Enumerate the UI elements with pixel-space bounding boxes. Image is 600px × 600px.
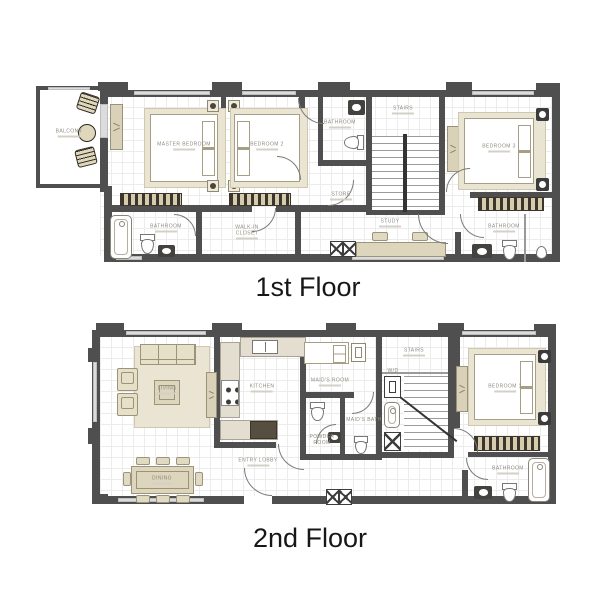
washer-dryer <box>384 376 401 398</box>
room-label-text: DINING <box>152 476 172 482</box>
room-label-text: POWDER ROOM <box>310 434 335 446</box>
armchair <box>117 368 138 391</box>
room-label-dining: DINING <box>151 476 173 485</box>
shaft-box <box>384 432 401 451</box>
closet-hatched <box>474 436 540 451</box>
stove <box>221 380 239 406</box>
dimension-line <box>173 149 195 151</box>
window <box>462 331 536 335</box>
dimension-line <box>236 238 258 240</box>
shaft-box <box>326 489 339 505</box>
room-label-text: BEDROOM 1 <box>488 384 522 390</box>
dimension-line <box>151 483 173 485</box>
dimension-line <box>155 231 177 233</box>
dining-chair <box>136 495 150 503</box>
wardrobe-cabinet <box>456 366 468 412</box>
entry-opening <box>244 496 272 504</box>
dimension-line <box>156 393 178 395</box>
room-label-powder-room: POWDER ROOM <box>304 434 340 446</box>
dimension-line <box>247 465 269 467</box>
room-label-bedroom3: BEDROOM 3 <box>482 144 516 153</box>
dimension-line <box>497 473 519 475</box>
pier <box>438 323 464 331</box>
dimension-line <box>392 113 414 115</box>
wall <box>462 470 468 498</box>
room-label-text: BATHROOM <box>324 120 356 126</box>
room-label-text: MAID'S BATH <box>346 417 382 423</box>
floor1-title: 1st Floor <box>255 272 360 303</box>
dimension-line <box>251 391 273 393</box>
dimension-line <box>330 199 352 201</box>
dimension-line <box>494 391 516 393</box>
room-label-text: MASTER BEDROOM <box>157 142 211 148</box>
room-label-text: W/D <box>388 368 399 374</box>
dimension-line <box>493 231 515 233</box>
window <box>93 362 97 422</box>
room-label-wd: W/D <box>388 368 399 374</box>
room-label-text: BATHROOM <box>150 224 182 230</box>
room-label-bathroom-left: BATHROOM <box>150 224 182 233</box>
window <box>126 331 206 335</box>
room-label-living: LIVING <box>156 386 178 395</box>
nightstand-lamp <box>538 350 551 363</box>
room-label-text: BATHROOM <box>492 466 524 472</box>
room-label-text: ENTRY LOBBY <box>238 458 277 464</box>
wall <box>468 452 556 457</box>
wall <box>376 452 454 458</box>
room-label-text: BEDROOM 2 <box>250 142 284 148</box>
dimension-line <box>488 151 510 153</box>
room-label-text: WALK-IN CLOSET <box>235 225 258 237</box>
stair-treads <box>404 376 448 450</box>
floor-plan-page: BALCONY MASTER BEDROOM BEDROOM 2 BATHROO… <box>0 0 600 600</box>
room-label-text: LIVING <box>158 386 177 392</box>
room-label-bathroom-right: BATHROOM <box>488 224 520 233</box>
pier <box>88 348 100 362</box>
room-label-bedroom2: BEDROOM 2 <box>250 142 284 151</box>
sink <box>474 486 492 499</box>
room-label-stairs: STAIRS <box>392 106 414 115</box>
dining-chair <box>156 457 170 465</box>
toilet <box>502 483 515 501</box>
dining-chair <box>195 472 203 486</box>
dimension-line <box>58 136 80 138</box>
room-label-text: STAIRS <box>404 348 424 354</box>
wall <box>214 442 276 448</box>
pier <box>326 323 356 331</box>
wall <box>300 392 354 398</box>
room-label-bathroom-mid: BATHROOM <box>324 120 356 129</box>
room-label-text: KITCHEN <box>250 384 275 390</box>
room-label-text: STORE <box>331 192 350 198</box>
nightstand-lamp <box>538 412 551 425</box>
toilet <box>310 402 323 420</box>
dimension-line <box>319 385 341 387</box>
room-label-bedroom1: BEDROOM 1 <box>488 384 522 393</box>
pier <box>96 323 124 331</box>
room-label-entry-lobby: ENTRY LOBBY <box>238 458 277 467</box>
sofa <box>140 344 196 365</box>
room-label-text: STAIRS <box>393 106 413 112</box>
room-label-text: BATHROOM <box>488 224 520 230</box>
room-label-store: STORE <box>330 192 352 201</box>
shaft-box <box>339 489 352 505</box>
dimension-line <box>329 127 351 129</box>
wall <box>376 336 382 458</box>
dining-chair <box>176 457 190 465</box>
dining-chair <box>136 457 150 465</box>
side-table <box>351 343 366 362</box>
pier <box>88 428 100 444</box>
room-label-bathroom2: BATHROOM <box>492 466 524 475</box>
dining-chair <box>123 472 131 486</box>
room-label-master-bedroom: MASTER BEDROOM <box>157 142 211 151</box>
pier <box>212 496 242 504</box>
room-label-text: STUDY <box>381 219 400 225</box>
room-label-kitchen: KITCHEN <box>250 384 275 393</box>
dimension-line <box>403 355 425 357</box>
toilet <box>354 436 366 453</box>
pier <box>534 324 556 331</box>
room-label-maids-bath: MAID'S BATH <box>346 417 382 423</box>
room-label-stairs2: STAIRS <box>403 348 425 357</box>
room-label-balcony: BALCONY <box>56 129 83 138</box>
room-label-walkin-closet: WALK-IN CLOSET <box>229 225 265 240</box>
kitchen-appliance <box>250 421 277 439</box>
dimension-line <box>379 226 401 228</box>
room-label-text: MAID'S ROOM <box>311 378 349 384</box>
room-label-maids-room: MAID'S ROOM <box>311 378 349 387</box>
room-label-text: BEDROOM 3 <box>482 144 516 150</box>
dining-chair <box>156 495 170 503</box>
tv-unit <box>206 372 217 418</box>
floor2-title: 2nd Floor <box>253 523 367 554</box>
room-label-study: STUDY <box>379 219 401 228</box>
maid-bed <box>304 342 349 364</box>
room-label-text: BALCONY <box>56 129 83 135</box>
small-tub <box>384 402 400 428</box>
pier <box>212 323 242 331</box>
dining-chair <box>176 495 190 503</box>
wall <box>340 398 345 456</box>
bathtub <box>528 458 550 502</box>
armchair <box>117 393 138 416</box>
pier <box>92 494 108 504</box>
kitchen-sink <box>252 340 278 354</box>
dimension-line <box>256 149 278 151</box>
